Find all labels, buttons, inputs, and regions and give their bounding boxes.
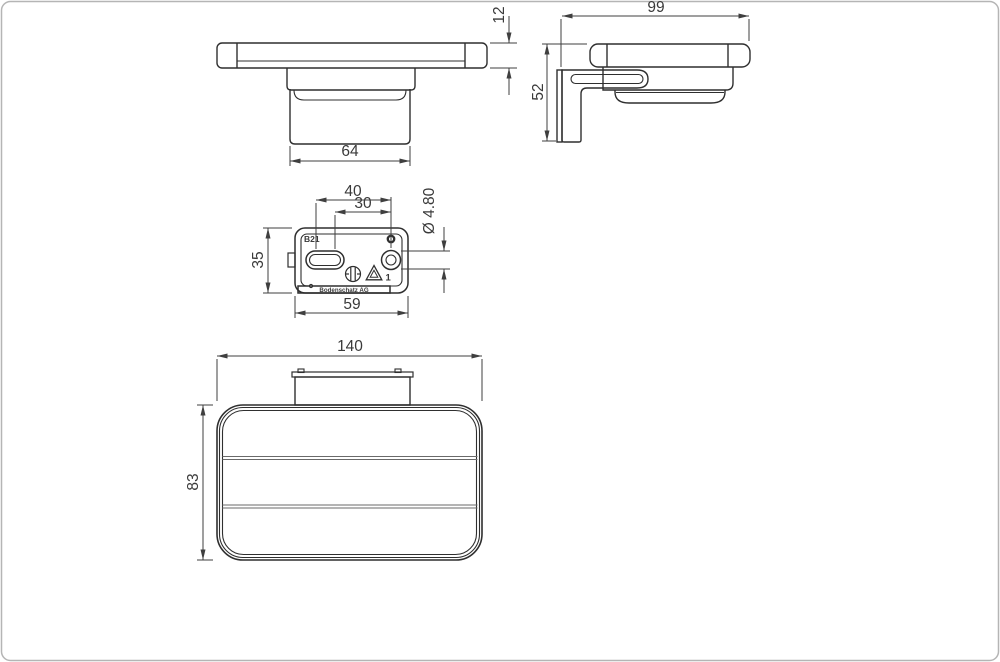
top-dish-outer [217,405,482,560]
side-wall-plate [557,70,562,142]
plate-left-tab [288,253,295,267]
dim-label-overall-depth: 83 [185,473,202,490]
side-rail [590,44,750,67]
page-border [2,2,999,661]
dim-label-plate-height: 35 [250,251,267,268]
top-bracket-notch-left [298,369,304,373]
plate-slot-hole [306,251,344,269]
dim-label-plate-width: 59 [343,296,360,313]
top-view-dimensions [197,356,482,560]
side-bracket-inner-line [571,75,643,84]
dim-label-overall-width: 140 [337,338,363,355]
dim-label-height: 52 [530,83,547,100]
top-dish-mid [220,408,480,558]
side-view-dimensions [542,16,749,141]
plate-round-hole [382,251,401,270]
side-bracket [562,70,648,142]
plate-code-label: B21 [304,234,320,244]
recycling-icon [366,266,382,280]
top-bracket-notch-right [395,369,401,373]
technical-drawing-page: 64 12 99 52 [0,0,1000,662]
top-bracket-body [295,377,410,405]
front-flange [287,68,415,90]
dim-label-depth: 99 [647,0,664,16]
dim-label-hole-spacing-inner: 30 [354,195,372,212]
technical-drawing-canvas: 64 12 99 52 [0,0,1000,662]
plate-slot-hole-inner [310,255,341,266]
front-view [217,43,487,144]
front-cup-rim [294,90,406,100]
dim-label-cup-width: 64 [341,143,359,160]
side-view [557,44,750,142]
top-dish-inner [223,411,477,555]
dim-label-hole-diameter: Ø 4.80 [421,187,438,234]
front-cup [290,89,410,144]
screw-head-icon [346,267,361,282]
brand-label: Bodenschatz AG [319,287,368,294]
material-class-label: 1 [386,273,392,284]
top-dish-ribs [223,457,478,509]
front-rail [217,43,487,68]
top-view [217,369,482,560]
dim-label-rail-thickness: 12 [491,6,508,23]
plate-round-hole-inner [386,255,396,265]
